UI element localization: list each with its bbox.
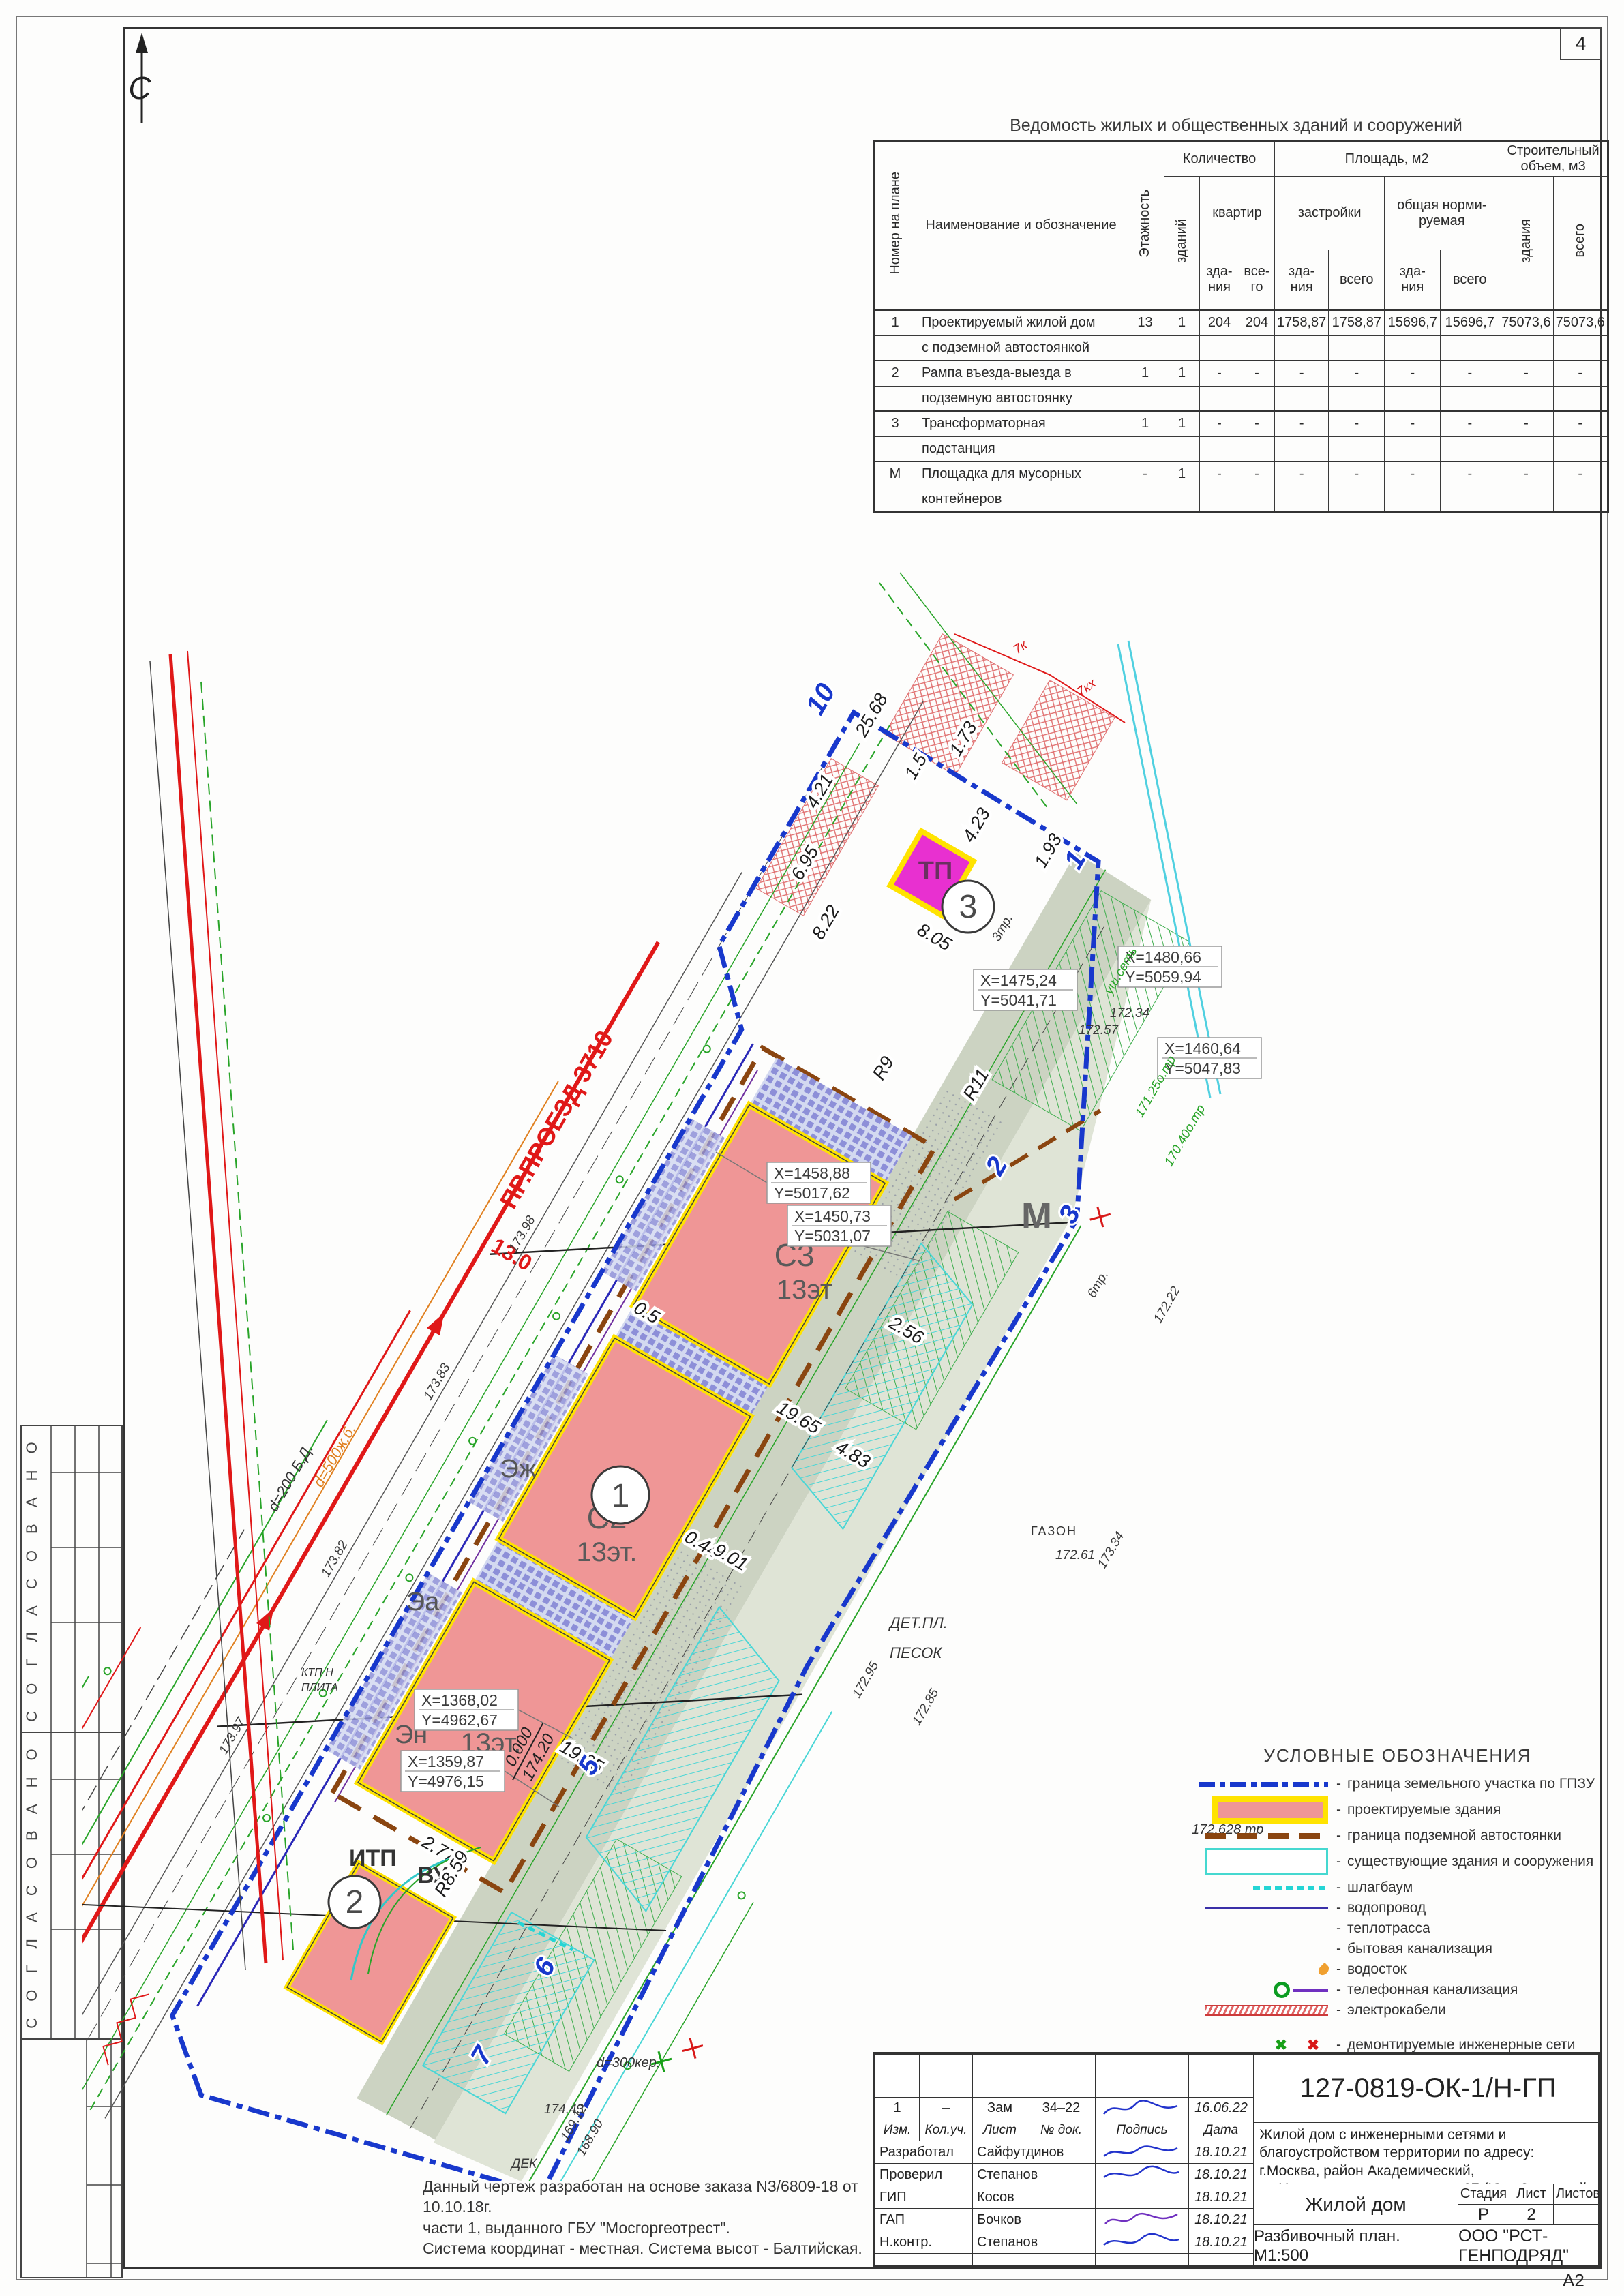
table-row: 3Трансформаторная11--------	[874, 411, 1608, 437]
svg-text:1: 1	[612, 1478, 630, 1514]
col-sub: все- го	[1239, 250, 1275, 310]
svg-text:Y=4976,15: Y=4976,15	[408, 1772, 484, 1790]
parking-boundary-swatch	[1205, 1833, 1328, 1839]
svg-text:ПЛИТА: ПЛИТА	[301, 1682, 338, 1693]
table-row-cont: контейнеров	[874, 487, 1608, 512]
spot-elevation: 173.82	[318, 1538, 350, 1580]
spot-elevation: 173.83	[421, 1361, 453, 1402]
svg-text:Y=4962,67: Y=4962,67	[421, 1711, 498, 1729]
site-plan: 19.65 0.5 0.44 2.56 2.77 4.83 9.01 19.65…	[82, 518, 1282, 2181]
svg-text:Эа: Эа	[406, 1588, 440, 1616]
note-line: части 1, выданного ГБУ "Мосгоргеотрест".	[423, 2218, 886, 2238]
person-date: 18.10.21	[1188, 2231, 1253, 2253]
sheet-header: Лист	[1509, 2184, 1553, 2204]
legend-item: -граница земельного участка по ГПЗУ	[1193, 1776, 1602, 1792]
col-list: Лист	[972, 2119, 1027, 2141]
person-name: Бочков	[972, 2208, 1095, 2231]
rev-kol: –	[919, 2097, 972, 2119]
buildings-table: Номер на плане Наименование и обозначени…	[873, 140, 1609, 513]
col-sub: зда- ния	[1275, 250, 1329, 310]
svg-text:Y=5041,71: Y=5041,71	[980, 991, 1057, 1009]
svg-text:172.22: 172.22	[1151, 1284, 1183, 1325]
signature	[1101, 2099, 1183, 2118]
title-block: 1 – Зам 34–22 16.06.22 Изм. Кол.уч. Лист…	[873, 2052, 1600, 2267]
col-vol-total: всего	[1573, 224, 1587, 258]
svg-text:Y=5059,94: Y=5059,94	[1125, 968, 1201, 986]
signature	[1101, 2165, 1183, 2184]
person-role: Проверил	[875, 2163, 972, 2186]
col-sub: всего	[1329, 250, 1385, 310]
svg-text:3: 3	[959, 889, 978, 925]
svg-text:172.34: 172.34	[1110, 1006, 1149, 1021]
sheet-number-box: 4	[1560, 27, 1602, 60]
svg-text:2: 2	[346, 1884, 364, 1920]
legend-item: -теплотрасса	[1193, 1920, 1602, 1937]
pipe-label: d=500ж.б.	[310, 1421, 359, 1490]
col-kol: Кол.уч.	[919, 2119, 972, 2141]
rev-list: Зам	[972, 2097, 1027, 2119]
svg-text:170.40о.тр: 170.40о.тр	[1162, 1102, 1208, 1168]
col-built: застройки	[1275, 177, 1385, 250]
note: Данный чертеж разработан на основе заказ…	[423, 2176, 886, 2259]
sheet-value: 2	[1509, 2204, 1553, 2224]
svg-text:172.95: 172.95	[849, 1659, 882, 1700]
signature	[1101, 2233, 1183, 2252]
legend-item: -телефонная канализация	[1193, 1982, 1602, 1998]
doc-description: Жилой дом с инженерными сетями и благоус…	[1253, 2122, 1602, 2184]
svg-text:X=1368,02: X=1368,02	[421, 1691, 498, 1709]
col-number: Номер на плане	[888, 172, 903, 275]
note-line: Система координат - местная. Система выс…	[423, 2238, 886, 2259]
stage-header: Стадия	[1458, 2184, 1509, 2204]
legend-item: -электрокабели	[1193, 2002, 1602, 2019]
col-apts: квартир	[1200, 177, 1275, 250]
table-row-cont: подземную автостоянку	[874, 387, 1608, 411]
svg-text:X=1450,73: X=1450,73	[794, 1207, 871, 1225]
person-date: 18.10.21	[1188, 2141, 1253, 2163]
north-arrow-icon: С	[112, 27, 174, 130]
road-name: ПР.ПРОЕЗД 3710	[494, 1025, 619, 1213]
stamp-label: С О Г Л А С О В А Н О	[23, 1436, 40, 1722]
itp-label: ИТП	[349, 1845, 397, 1871]
playground-label: ДЕТ.ПЛ.	[888, 1614, 948, 1631]
person-name: Степанов	[972, 2231, 1095, 2253]
table-row-cont: с подземной автостоянкой	[874, 336, 1608, 361]
stage-value: Р	[1458, 2204, 1509, 2224]
north-letter: С	[128, 70, 151, 106]
svg-text:7кх: 7кх	[1074, 676, 1100, 699]
person-name: Сайфутдинов	[972, 2141, 1095, 2163]
svg-text:172.61: 172.61	[1055, 1548, 1095, 1562]
col-doc: № док.	[1027, 2119, 1095, 2141]
person-name: Косов	[972, 2186, 1095, 2208]
col-qty-bld: зданий	[1175, 219, 1189, 263]
existing-building-swatch	[1205, 1848, 1328, 1875]
svg-text:7к: 7к	[1011, 637, 1031, 657]
person-role: ГАП	[875, 2208, 972, 2231]
waste-area-label: М	[1021, 1196, 1052, 1237]
legend-item: -водопровод	[1193, 1900, 1602, 1916]
col-qty: Количество	[1164, 141, 1275, 177]
tp-label: ТП	[918, 857, 953, 886]
svg-text:X=1458,88: X=1458,88	[774, 1164, 850, 1182]
barrier-swatch	[1253, 1886, 1328, 1890]
sheet-number: 4	[1576, 33, 1587, 55]
col-date: Дата	[1188, 2119, 1253, 2141]
svg-text:d=300кер.: d=300кер.	[597, 2055, 660, 2070]
person-role: ГИП	[875, 2186, 972, 2208]
svg-text:6тр.: 6тр.	[1085, 1269, 1111, 1301]
site-strip: 19.65 0.5 0.44 2.56 2.77 4.83 9.01 19.65…	[82, 518, 1282, 2181]
legend-item: -шлагбаум	[1193, 1879, 1602, 1896]
svg-text:171.25о.тр: 171.25о.тр	[1132, 1053, 1179, 1119]
table-row-cont: подстанция	[874, 437, 1608, 462]
col-name: Наименование и обозначение	[916, 141, 1126, 310]
spot-elevation: 173.97	[216, 1715, 249, 1757]
svg-text:172.57: 172.57	[1079, 1023, 1119, 1038]
projected-building-swatch	[1212, 1796, 1328, 1824]
svg-text:13эт: 13эт	[777, 1275, 832, 1305]
rev-izm: 1	[875, 2097, 919, 2119]
legend-item: -существующие здания и сооружения	[1193, 1848, 1602, 1875]
rev-date: 16.06.22	[1188, 2097, 1253, 2119]
svg-text:ДЕК: ДЕК	[510, 2157, 538, 2171]
company-name: ООО "РСТ-ГЕНПОДРЯД"	[1458, 2224, 1602, 2267]
water-line-swatch	[1205, 1907, 1328, 1909]
sheets-header: Листов	[1553, 2184, 1602, 2204]
table-row: 1Проектируемый жилой дом1312042041758,87…	[874, 310, 1608, 336]
col-area: Площадь, м2	[1275, 141, 1499, 177]
col-sign: Подпись	[1095, 2119, 1188, 2141]
land-boundary-swatch	[1199, 1782, 1328, 1787]
svg-text:10: 10	[800, 678, 841, 720]
svg-text:3тр.: 3тр.	[989, 912, 1016, 944]
sheets-value	[1553, 2204, 1602, 2224]
stamp-label: С О Г Л А С О В А Н О	[23, 1742, 40, 2029]
col-norm: общая норми- руемая	[1385, 177, 1499, 250]
col-sub: зда- ния	[1200, 250, 1239, 310]
col-izm: Изм.	[875, 2119, 919, 2141]
svg-text:173.34: 173.34	[1095, 1530, 1127, 1571]
legend-item: -проектируемые здания	[1193, 1796, 1602, 1824]
phone-line-swatch	[1274, 1982, 1328, 1998]
svg-text:172.85: 172.85	[909, 1686, 942, 1727]
legend-item: -водосток	[1193, 1961, 1602, 1978]
rev-doc: 34–22	[1027, 2097, 1095, 2119]
person-date: 18.10.21	[1188, 2163, 1253, 2186]
svg-text:X=1460,64: X=1460,64	[1164, 1040, 1241, 1057]
drawing-name: Разбивочный план. М1:500	[1253, 2224, 1458, 2267]
svg-text:КТП Н: КТП Н	[301, 1667, 333, 1678]
person-date: 18.10.21	[1188, 2186, 1253, 2208]
table-title: Ведомость жилых и общественных зданий и …	[873, 116, 1599, 136]
signature	[1101, 2143, 1183, 2162]
col-vol-bld: здания	[1519, 219, 1533, 263]
svg-text:Y=5017,62: Y=5017,62	[774, 1184, 850, 1202]
svg-text:13эт.: 13эт.	[576, 1537, 637, 1567]
legend-item: -граница подземной автостоянки	[1193, 1828, 1602, 1844]
person-date: 18.10.21	[1188, 2208, 1253, 2231]
legend-title: УСЛОВНЫЕ ОБОЗНАЧЕНИЯ	[1193, 1745, 1602, 1766]
table-row: 2Рампа въезда-выезда в11--------	[874, 361, 1608, 387]
table-row: МПлощадка для мусорных-1--------	[874, 462, 1608, 487]
doc-number: 127-0819-ОК-1/Н-ГП	[1253, 2054, 1602, 2122]
pipe-label: d=200 Б.Д.	[265, 1441, 317, 1515]
svg-text:Эж: Эж	[500, 1455, 537, 1483]
legend: УСЛОВНЫЕ ОБОЗНАЧЕНИЯ -граница земельного…	[1193, 1745, 1602, 2058]
svg-text:Y=5031,07: Y=5031,07	[794, 1227, 871, 1245]
person-name: Степанов	[972, 2163, 1095, 2186]
col-volume: Строительный объем, м3	[1499, 141, 1608, 177]
cable-swatch	[1205, 2005, 1328, 2016]
coord-callout: X=1475,24 Y=5041,71	[974, 969, 1077, 1010]
col-sub: всего	[1441, 250, 1499, 310]
col-sub: зда- ния	[1385, 250, 1441, 310]
note-line: Данный чертеж разработан на основе заказ…	[423, 2176, 886, 2218]
svg-text:X=1475,24: X=1475,24	[980, 971, 1057, 989]
person-role: Разработал	[875, 2141, 972, 2163]
svg-text:4.23: 4.23	[959, 804, 994, 846]
col-floors: Этажность	[1138, 190, 1152, 258]
legend-item: -бытовая канализация	[1193, 1941, 1602, 1957]
svg-text:8.22: 8.22	[808, 902, 843, 943]
signature	[1101, 2210, 1183, 2229]
svg-text:X=1359,87: X=1359,87	[408, 1753, 484, 1770]
svg-text:ПЕСОК: ПЕСОК	[890, 1644, 942, 1661]
lawn-label: ГАЗОН	[1031, 1524, 1077, 1538]
person-role: Н.контр.	[875, 2231, 972, 2253]
drain-swatch	[1317, 1962, 1331, 1976]
svg-text:R9: R9	[869, 1053, 898, 1083]
object-name: Жилой дом	[1253, 2184, 1458, 2224]
format-label: А2	[1563, 2270, 1584, 2291]
